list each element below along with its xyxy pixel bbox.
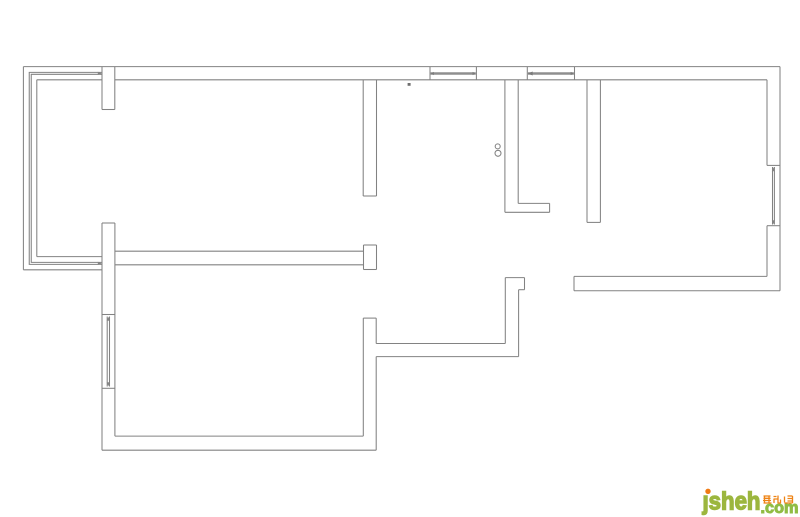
svg-text:ȷsheh: ȷsheh [702, 488, 761, 516]
